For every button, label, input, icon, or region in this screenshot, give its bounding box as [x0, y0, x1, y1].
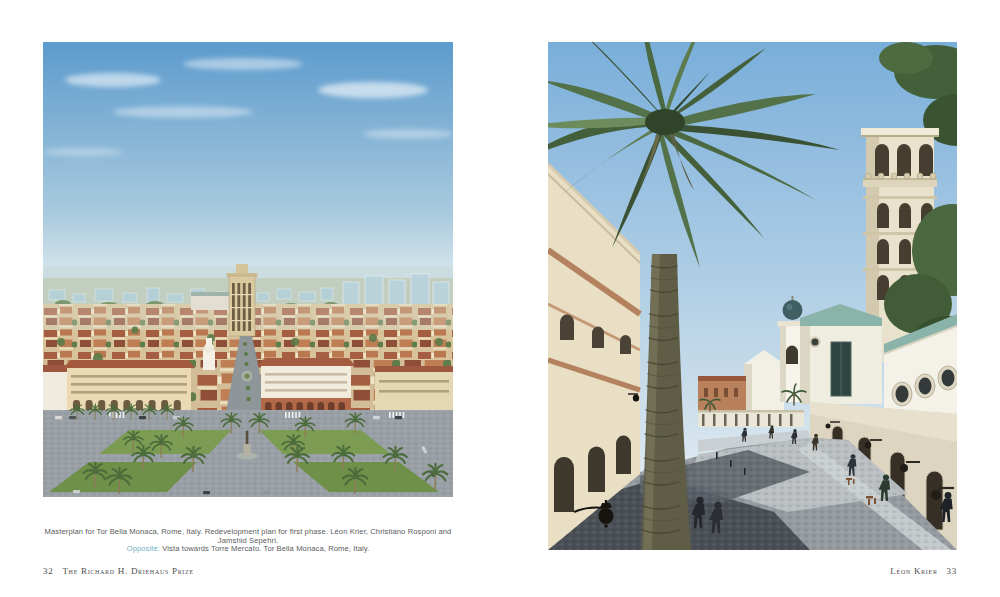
masterplan-aerial-rendering — [43, 42, 453, 497]
plaza — [43, 404, 453, 497]
book-spread: Masterplan for Tor Bella Monaca, Rome, I… — [0, 0, 1000, 597]
opposite-label: Opposite: — [127, 544, 160, 553]
caption-line1: Masterplan for Tor Bella Monaca, Rome, I… — [45, 527, 452, 545]
right-page-number: 33 — [947, 566, 957, 576]
opposite-text: Vista towards Torre Mercato. Tor Bella M… — [160, 544, 369, 553]
left-image-caption: Masterplan for Tor Bella Monaca, Rome, I… — [43, 527, 453, 545]
left-page-figure — [43, 42, 453, 497]
left-page-number: 32 — [43, 566, 53, 576]
colonnade-stoa — [698, 410, 804, 427]
torre-mercato-vista-rendering — [548, 42, 957, 550]
sky — [43, 42, 453, 280]
opposite-caption: Opposite: Vista towards Torre Mercato. T… — [43, 544, 453, 553]
right-running-title: Léon Krier — [890, 566, 937, 576]
left-running-title: The Richard H. Driehaus Prize — [62, 566, 193, 576]
left-running-footer: 32The Richard H. Driehaus Prize — [43, 566, 194, 576]
right-running-footer: Léon Krier33 — [890, 566, 957, 576]
right-page-figure — [548, 42, 957, 550]
teal-roof-building — [800, 304, 882, 404]
